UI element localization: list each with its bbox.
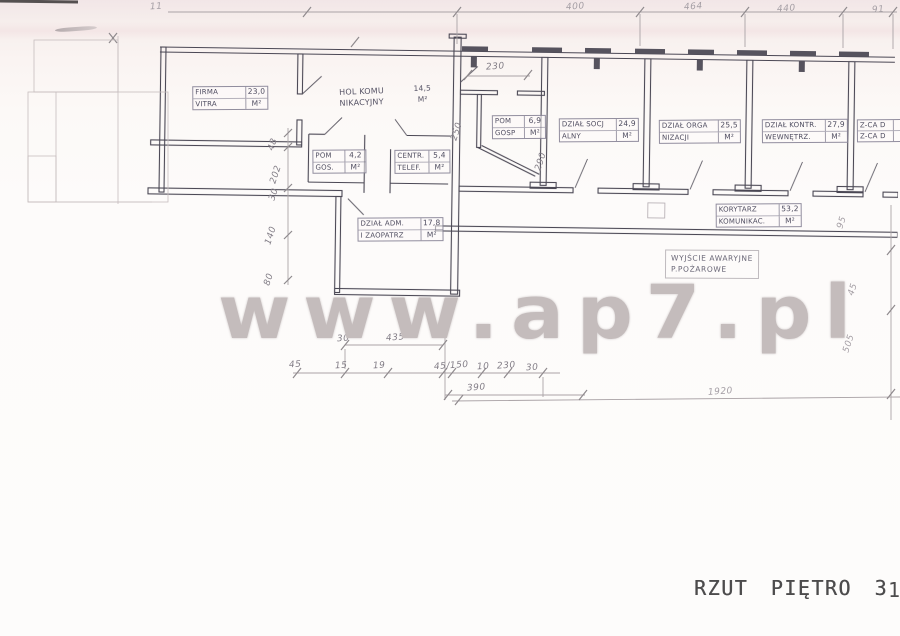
- dim-top-91: 91: [872, 5, 885, 16]
- adjacent-structure-faint: [28, 36, 168, 204]
- watermark-text: www.ap7.pl: [218, 270, 864, 356]
- dim-top-440: 440: [777, 3, 796, 14]
- dim-mid-230: 230: [486, 61, 505, 72]
- dim-row3-390: 390: [467, 382, 486, 393]
- scanned-floorplan-page: FIRMA23,0 VITRAM² HOL KOMU14,5 NIKACYJNY…: [0, 0, 900, 636]
- dim-row2-230: 230: [497, 360, 516, 371]
- drawing-title-stamp: RZUT PIĘTRO 3: [694, 576, 888, 600]
- dim-row2-45: 45: [289, 360, 302, 371]
- dim-long-1920: 1920: [708, 386, 734, 398]
- dimension-chain-lines: [168, 12, 900, 420]
- drawing-scale-fragment: 1: [888, 578, 900, 602]
- dim-row2-10: 10: [477, 362, 490, 373]
- dim-row2-15: 15: [335, 361, 348, 372]
- dim-top-464: 464: [684, 1, 703, 12]
- dim-row2-19: 19: [373, 361, 386, 372]
- dim-top-400: 400: [566, 1, 585, 12]
- dim-row2-30: 30: [526, 363, 539, 374]
- dim-top-left-corner: 11: [150, 2, 163, 13]
